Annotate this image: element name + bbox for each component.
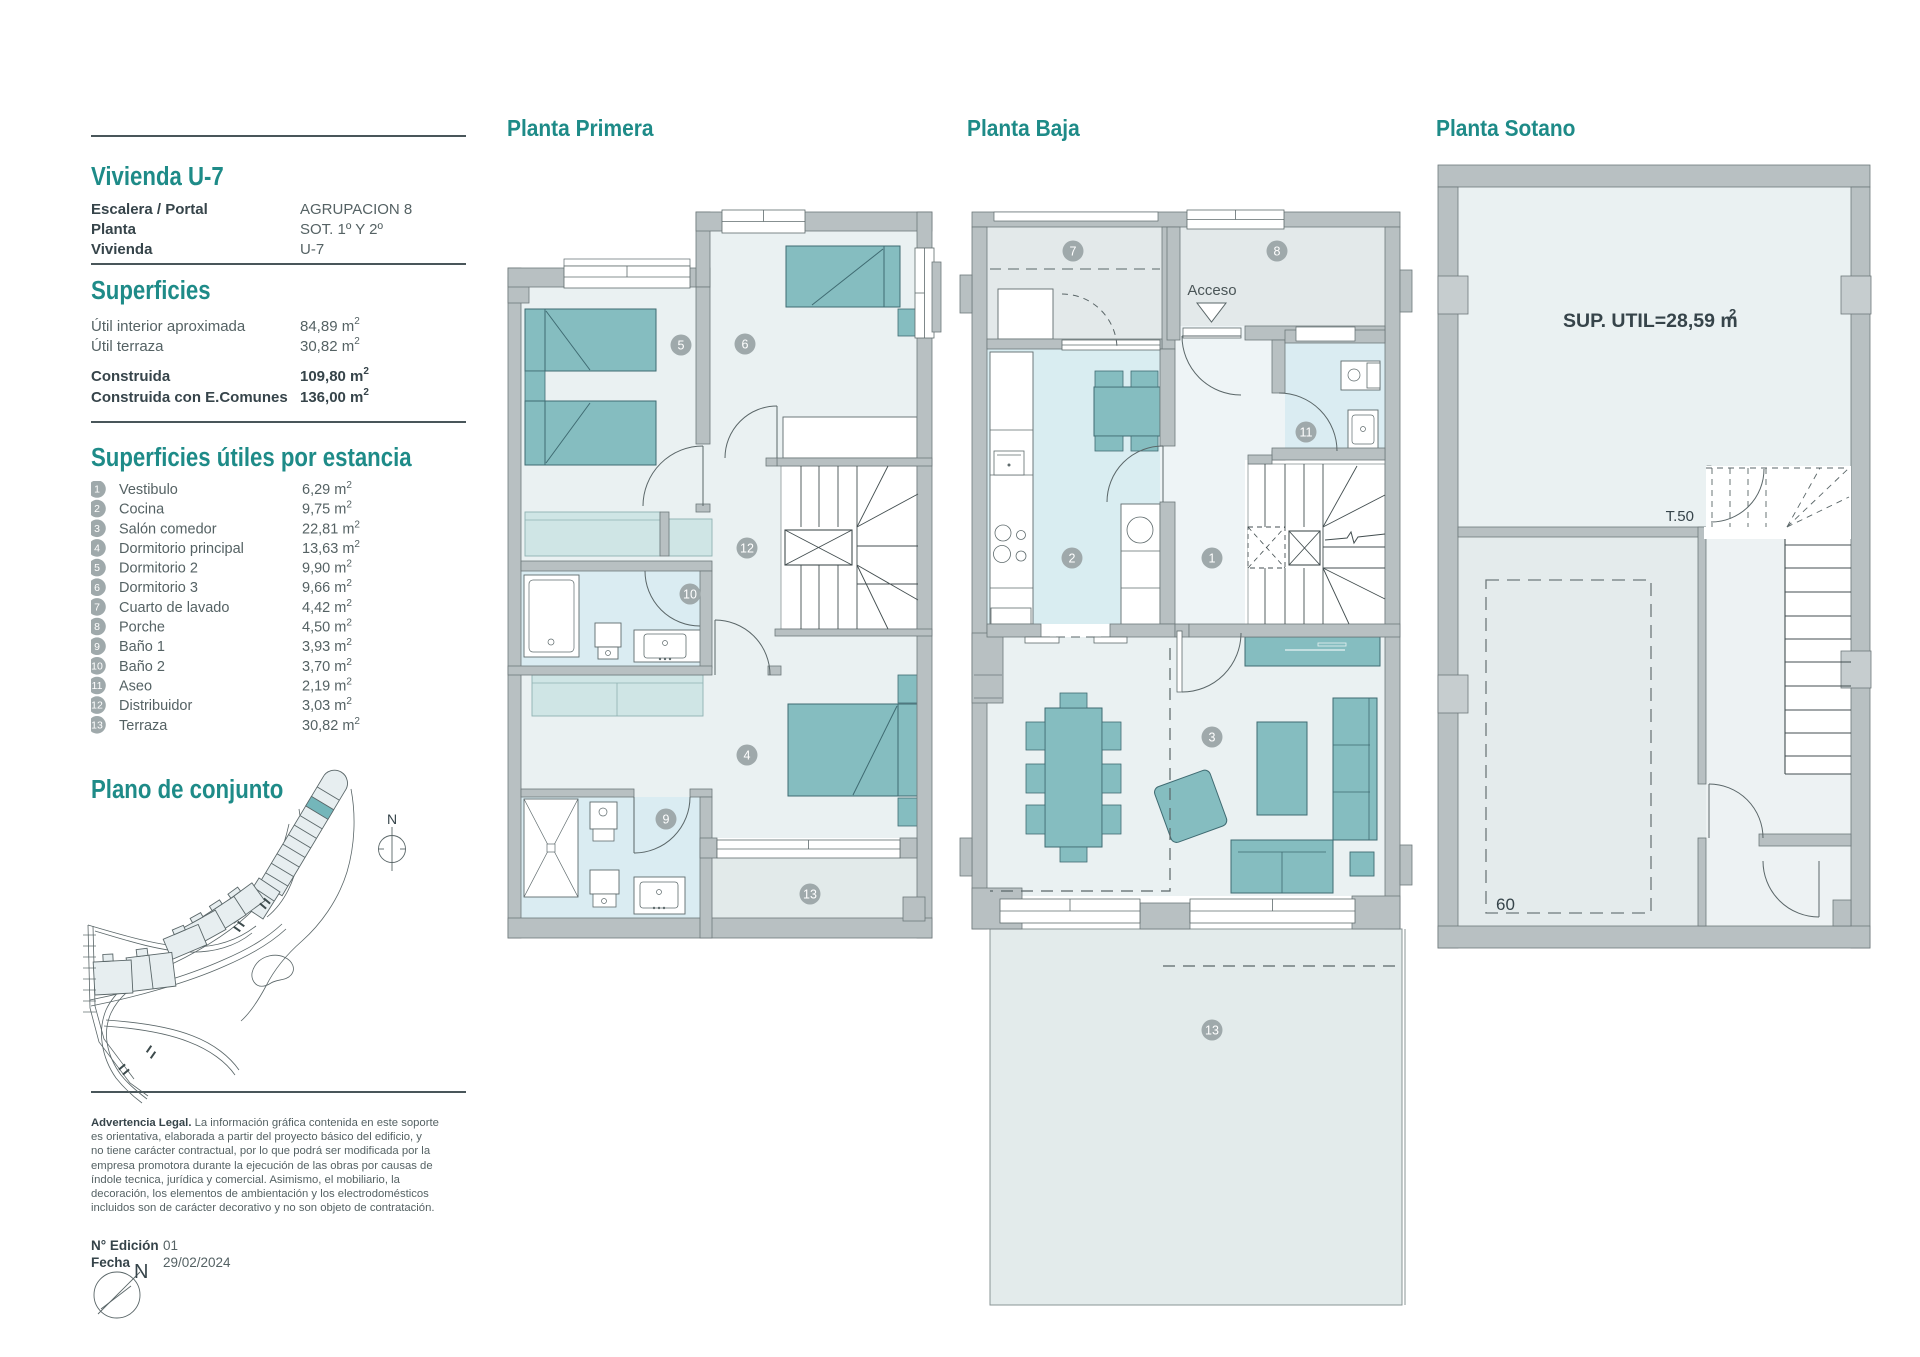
svg-text:10: 10 [683,588,697,602]
svg-text:2: 2 [1729,306,1736,321]
svg-text:3: 3 [1209,731,1216,745]
svg-text:5: 5 [678,339,685,353]
svg-text:60: 60 [1496,895,1515,914]
svg-text:1: 1 [1209,552,1216,566]
svg-text:8: 8 [1274,245,1281,259]
svg-text:12: 12 [740,542,754,556]
svg-text:6: 6 [742,338,749,352]
svg-text:N: N [134,1261,148,1283]
svg-text:13: 13 [1205,1024,1219,1038]
svg-text:Acceso: Acceso [1187,282,1236,299]
svg-text:11: 11 [1300,426,1313,440]
svg-text:13: 13 [803,888,817,902]
svg-text:SUP. UTIL=28,59 m: SUP. UTIL=28,59 m [1563,310,1738,332]
svg-text:T.50: T.50 [1666,508,1694,525]
svg-text:4: 4 [744,749,751,763]
svg-text:9: 9 [663,813,670,827]
svg-text:2: 2 [1069,552,1076,566]
svg-text:7: 7 [1070,245,1077,259]
svg-text:N: N [387,811,397,827]
